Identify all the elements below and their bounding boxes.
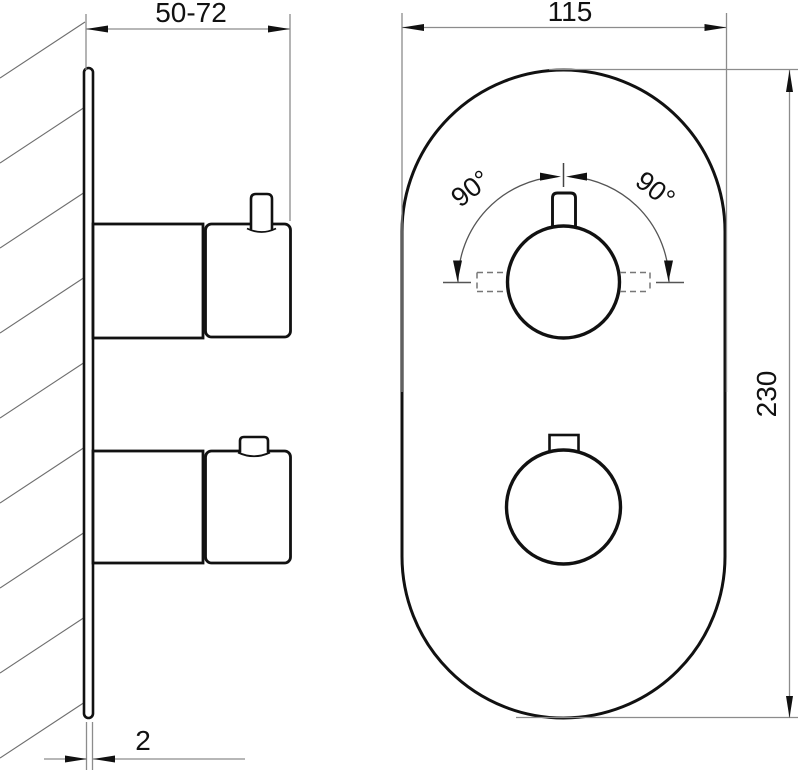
top-knob-circle: [508, 226, 620, 338]
top-valve-side-view: [93, 194, 291, 338]
bottom-handle-tab-side: [240, 437, 268, 453]
dimension-depth-range-label: 50-72: [155, 0, 227, 27]
bottom-knob-circle: [507, 450, 621, 564]
dimension-thickness-label: 2: [135, 727, 151, 755]
mounting-plate-side-view: [84, 68, 93, 718]
dimension-depth: [86, 14, 290, 221]
bottom-valve-body-side: [93, 451, 203, 563]
dimension-height-label: 230: [753, 371, 781, 418]
top-handle-side: [206, 224, 291, 337]
dimension-width-label: 115: [548, 0, 593, 26]
bottom-valve-side-view: [93, 437, 291, 563]
top-handle-tab-side: [251, 194, 272, 230]
drawing-linework: [0, 0, 800, 771]
top-valve-body-side: [93, 224, 203, 338]
bottom-handle-side: [206, 451, 291, 563]
wall-hatching: [0, 22, 85, 758]
technical-drawing-canvas: 50-72 115 230 2 90° 90°: [0, 0, 800, 771]
